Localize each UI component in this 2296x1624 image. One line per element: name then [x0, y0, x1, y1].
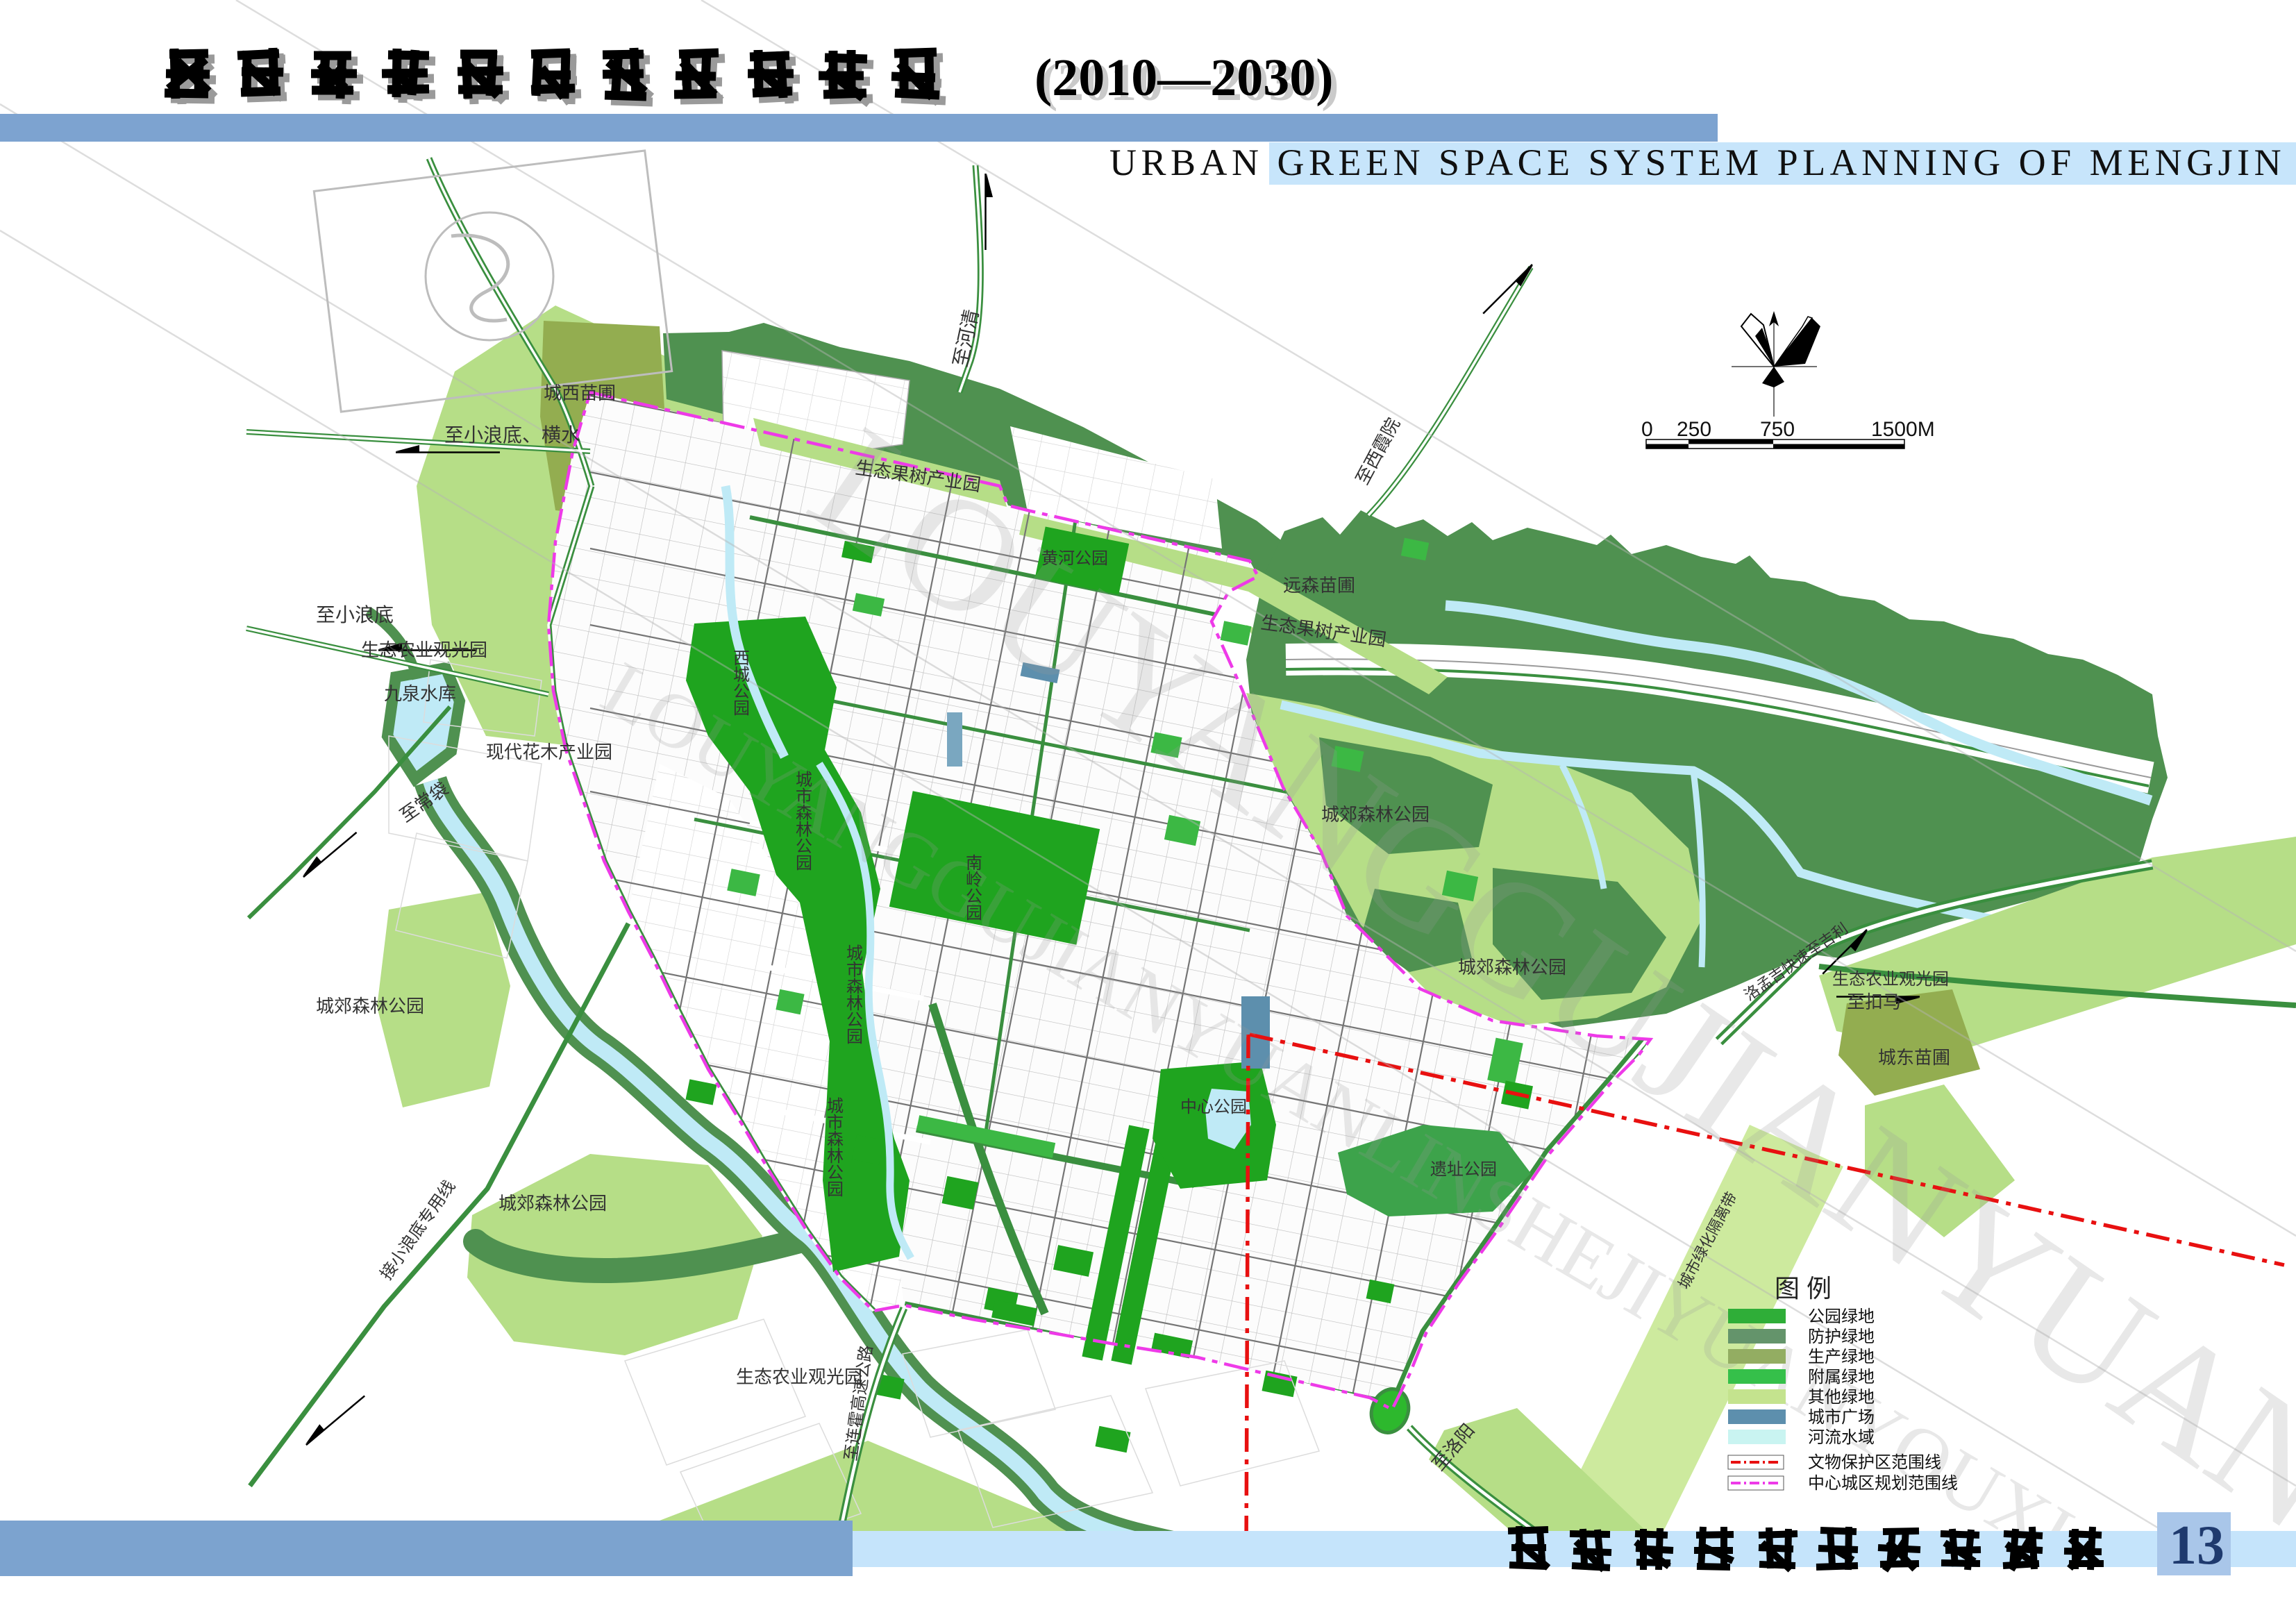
svg-text:西城公园: 西城公园 — [730, 649, 750, 716]
svg-text:URBAN GREEN SPACE SYSTEM PLANN: URBAN GREEN SPACE SYSTEM PLANNING OF MEN… — [1109, 142, 2286, 183]
svg-text:文物保护区范围线: 文物保护区范围线 — [1808, 1453, 1941, 1472]
svg-text:现代花木产业园: 现代花木产业园 — [486, 742, 612, 762]
svg-text:750: 750 — [1760, 418, 1795, 441]
svg-text:至扣马: 至扣马 — [1847, 991, 1901, 1012]
svg-text:中心公园: 中心公园 — [1180, 1098, 1247, 1116]
svg-text:附属绿地: 附属绿地 — [1808, 1368, 1875, 1387]
svg-text:1500M: 1500M — [1871, 418, 1935, 441]
svg-text:(2010—2030): (2010—2030) — [1034, 49, 1334, 107]
svg-text:防护绿地: 防护绿地 — [1808, 1328, 1875, 1346]
svg-text:生态农业观光园: 生态农业观光园 — [361, 639, 487, 660]
svg-text:图 例: 图 例 — [1775, 1274, 1832, 1303]
svg-text:生态农业观光园: 生态农业观光园 — [1832, 970, 1949, 989]
svg-text:城郊森林公园: 城郊森林公园 — [316, 996, 424, 1016]
svg-text:黄河公园: 黄河公园 — [1041, 549, 1108, 568]
svg-text:城市森林公园: 城市森林公园 — [793, 771, 812, 871]
svg-text:生产绿地: 生产绿地 — [1808, 1348, 1875, 1366]
svg-text:河流水域: 河流水域 — [1808, 1428, 1875, 1447]
svg-text:南岭公园: 南岭公园 — [963, 854, 982, 921]
svg-text:250: 250 — [1677, 418, 1711, 441]
svg-text:遗址公园: 遗址公园 — [1430, 1160, 1497, 1179]
svg-text:城东苗圃: 城东苗圃 — [1878, 1047, 1950, 1068]
svg-text:远森苗圃: 远森苗圃 — [1283, 575, 1355, 596]
svg-text:生态农业观光园: 生态农业观光园 — [736, 1366, 862, 1387]
svg-text:中心城区规划范围线: 中心城区规划范围线 — [1808, 1474, 1958, 1493]
svg-text:公园绿地: 公园绿地 — [1808, 1307, 1875, 1326]
svg-text:城西苗圃: 城西苗圃 — [544, 383, 616, 403]
svg-text:城市森林公园: 城市森林公园 — [844, 944, 863, 1044]
svg-text:0: 0 — [1641, 418, 1653, 441]
svg-text:城市森林公园: 城市森林公园 — [824, 1097, 844, 1197]
svg-text:13: 13 — [2169, 1515, 2224, 1576]
svg-text:至小浪底: 至小浪底 — [316, 604, 394, 626]
svg-text:九泉水库: 九泉水库 — [384, 683, 456, 704]
svg-text:至小浪底、横水: 至小浪底、横水 — [444, 424, 580, 446]
svg-text:城郊森林公园: 城郊森林公园 — [1458, 957, 1566, 978]
svg-text:城市广场: 城市广场 — [1808, 1408, 1875, 1427]
svg-text:城郊森林公园: 城郊森林公园 — [498, 1193, 607, 1214]
svg-text:城郊森林公园: 城郊森林公园 — [1321, 804, 1430, 825]
svg-text:其他绿地: 其他绿地 — [1808, 1388, 1875, 1407]
